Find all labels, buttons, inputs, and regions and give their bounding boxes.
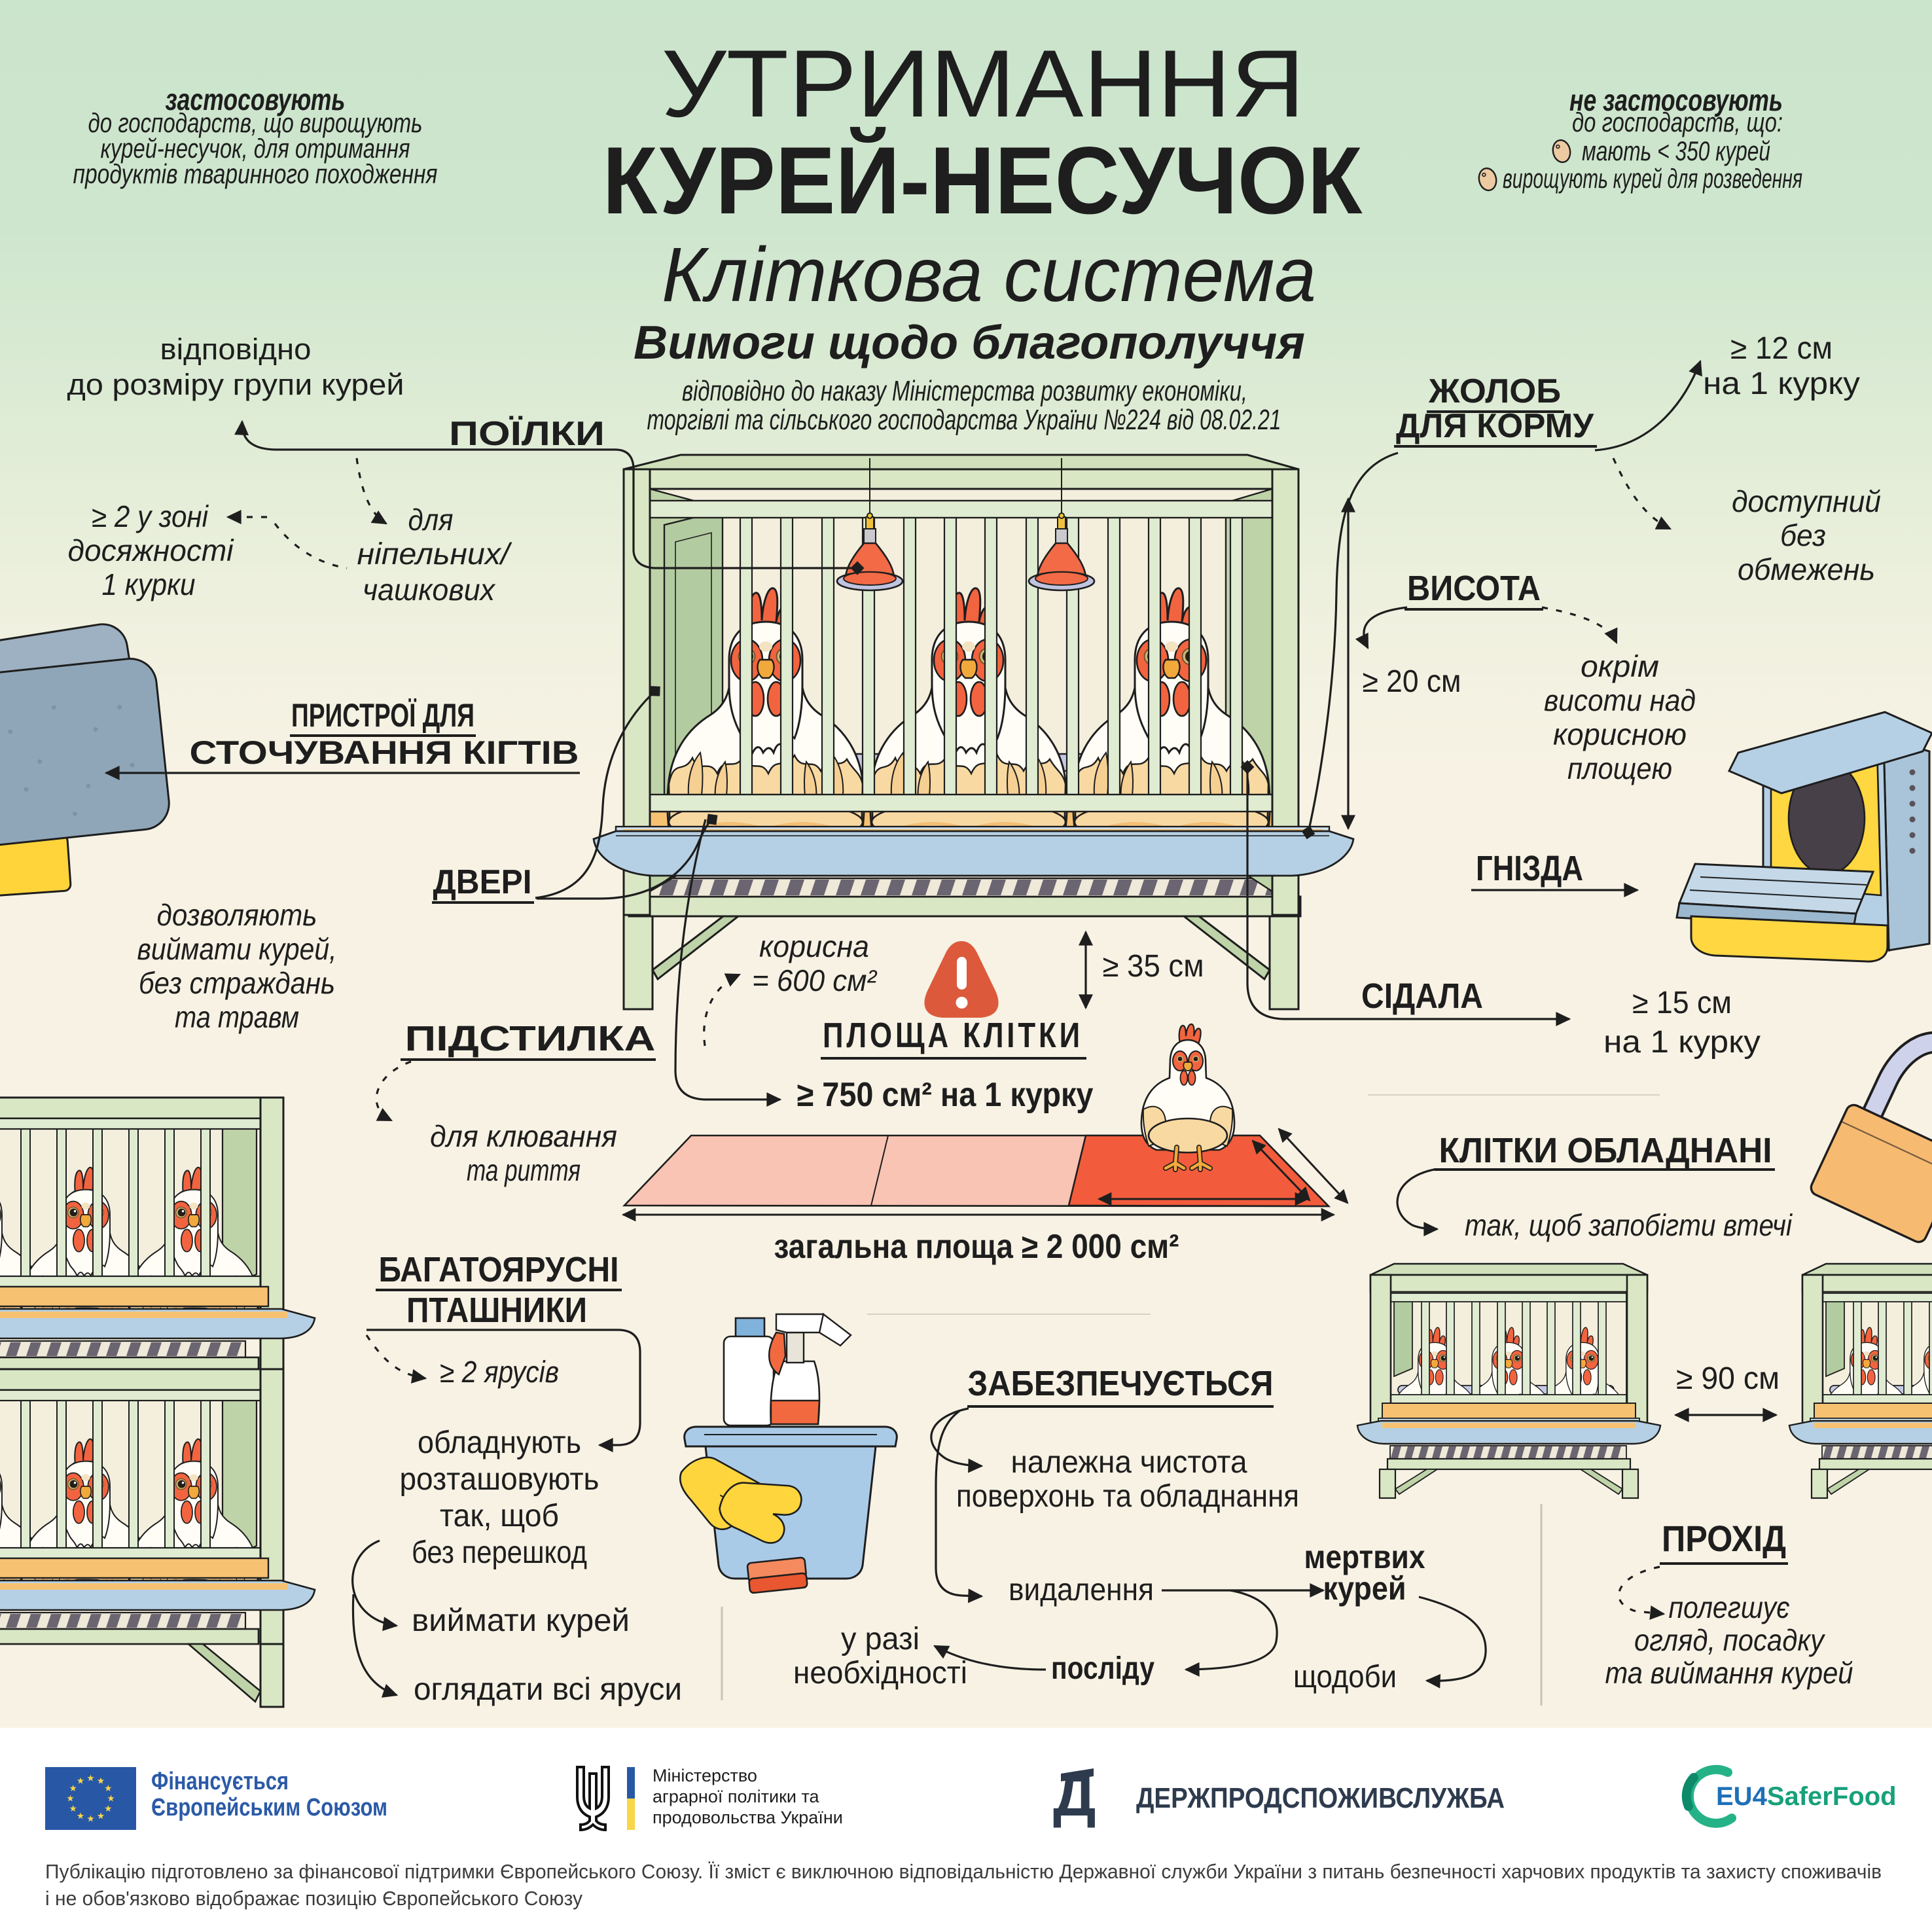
svg-text:чашкових: чашкових	[363, 573, 496, 607]
svg-text:виймати курей,: виймати курей,	[137, 932, 337, 966]
svg-text:УТРИМАННЯ: УТРИМАННЯ	[662, 30, 1305, 137]
svg-text:необхідності: необхідності	[793, 1656, 967, 1690]
svg-text:поверхонь та обладнання: поверхонь та обладнання	[956, 1479, 1299, 1514]
svg-text:так, щоб запобігти втечі: так, щоб запобігти втечі	[1465, 1208, 1793, 1242]
svg-text:ПІДСТИЛКА: ПІДСТИЛКА	[405, 1019, 656, 1058]
svg-text:висоти над: висоти над	[1544, 683, 1696, 717]
svg-text:= 600 см²: = 600 см²	[752, 963, 878, 997]
svg-text:посліду: посліду	[1051, 1651, 1154, 1686]
svg-text:відповідно: відповідно	[160, 332, 312, 366]
svg-text:≥ 750 см² на 1 курку: ≥ 750 см² на 1 курку	[797, 1076, 1094, 1114]
svg-text:ГНІЗДА: ГНІЗДА	[1476, 849, 1583, 888]
svg-text:на 1 курку: на 1 курку	[1703, 367, 1860, 401]
svg-text:для клювання: для клювання	[430, 1119, 617, 1153]
svg-text:КЛІТКИ ОБЛАДНАНІ: КЛІТКИ ОБЛАДНАНІ	[1439, 1131, 1772, 1170]
svg-text:належна чистота: належна чистота	[1011, 1445, 1247, 1480]
svg-text:окрім: окрім	[1581, 649, 1659, 683]
svg-text:до господарств, що:: до господарств, що:	[1572, 107, 1783, 137]
svg-text:доступний: доступний	[1732, 484, 1881, 518]
svg-text:до розміру групи курей: до розміру групи курей	[67, 368, 404, 401]
svg-text:мають < 350 курей: мають < 350 курей	[1582, 135, 1770, 166]
svg-text:ВИСОТА: ВИСОТА	[1407, 569, 1541, 608]
svg-text:щодоби: щодоби	[1293, 1660, 1397, 1694]
svg-text:торгівлі та сільського господа: торгівлі та сільського господарства Укра…	[647, 404, 1281, 436]
svg-text:продовольства України: продовольства України	[653, 1808, 843, 1827]
svg-text:≥ 35 см: ≥ 35 см	[1103, 949, 1204, 984]
svg-text:Вимоги щодо благополуччя: Вимоги щодо благополуччя	[634, 317, 1305, 369]
svg-text:Кліткова система: Кліткова система	[662, 232, 1316, 318]
svg-text:і не обов'язково відображає по: і не обов'язково відображає позицію Євро…	[45, 1887, 582, 1910]
svg-text:загальна площа ≥ 2 000 см²: загальна площа ≥ 2 000 см²	[774, 1228, 1179, 1266]
svg-text:виймати курей: виймати курей	[412, 1603, 630, 1638]
svg-text:вирощують курей для розведення: вирощують курей для розведення	[1503, 163, 1802, 194]
svg-text:оглядати всі яруси: оглядати всі яруси	[414, 1672, 682, 1707]
svg-text:СІДАЛА: СІДАЛА	[1361, 976, 1483, 1016]
svg-text:обмежень: обмежень	[1738, 552, 1875, 586]
svg-text:аграрної політики та: аграрної політики та	[653, 1787, 820, 1806]
svg-text:без: без	[1780, 518, 1826, 552]
svg-text:БАГАТОЯРУСНІ: БАГАТОЯРУСНІ	[379, 1250, 619, 1289]
svg-text:курей: курей	[1323, 1570, 1406, 1607]
svg-text:СТОЧУВАННЯ КІГТІВ: СТОЧУВАННЯ КІГТІВ	[190, 734, 579, 771]
svg-text:полегшує: полегшує	[1669, 1590, 1790, 1624]
svg-text:Міністерство: Міністерство	[653, 1766, 757, 1785]
svg-text:корисною: корисною	[1553, 717, 1687, 751]
svg-text:продуктів тваринного походженн: продуктів тваринного походження	[73, 158, 438, 189]
svg-text:≥ 2 ярусів: ≥ 2 ярусів	[440, 1355, 559, 1389]
svg-text:на 1 курку: на 1 курку	[1603, 1025, 1761, 1060]
svg-text:КУРЕЙ-НЕСУЧОК: КУРЕЙ-НЕСУЧОК	[603, 126, 1363, 234]
svg-text:огляд, посадку: огляд, посадку	[1634, 1623, 1826, 1657]
svg-text:ПРИСТРОЇ ДЛЯ: ПРИСТРОЇ ДЛЯ	[291, 697, 474, 734]
svg-text:ЗАБЕЗПЕЧУЄТЬСЯ: ЗАБЕЗПЕЧУЄТЬСЯ	[968, 1364, 1274, 1403]
svg-text:та травм: та травм	[175, 1000, 299, 1034]
svg-text:площею: площею	[1567, 751, 1672, 785]
svg-text:без страждань: без страждань	[139, 966, 335, 1000]
svg-text:≥ 12 см: ≥ 12 см	[1730, 331, 1833, 366]
svg-text:ДВЕРІ: ДВЕРІ	[433, 863, 532, 901]
svg-text:ДЕРЖПРОДСПОЖИВСЛУЖБА: ДЕРЖПРОДСПОЖИВСЛУЖБА	[1136, 1782, 1505, 1814]
svg-text:видалення: видалення	[1009, 1573, 1154, 1607]
svg-text:1 курки: 1 курки	[102, 567, 196, 601]
svg-text:EU4SaferFood: EU4SaferFood	[1716, 1782, 1897, 1811]
svg-text:без перешкод: без перешкод	[412, 1535, 587, 1570]
svg-text:у разі: у разі	[841, 1622, 920, 1656]
svg-text:ПРОХІД: ПРОХІД	[1662, 1518, 1786, 1559]
svg-text:корисна: корисна	[759, 929, 869, 963]
svg-text:Фінансується: Фінансується	[151, 1768, 289, 1795]
svg-text:обладнують: обладнують	[418, 1425, 581, 1460]
svg-text:ЖОЛОБ: ЖОЛОБ	[1428, 372, 1561, 410]
svg-text:досяжності: досяжності	[68, 533, 235, 567]
svg-text:так, щоб: так, щоб	[440, 1499, 559, 1533]
svg-text:ПОЇЛКИ: ПОЇЛКИ	[449, 415, 605, 453]
svg-text:≥ 90 см: ≥ 90 см	[1676, 1361, 1780, 1396]
svg-text:та виймання курей: та виймання курей	[1605, 1656, 1853, 1690]
svg-text:розташовують: розташовують	[400, 1462, 599, 1497]
svg-text:≥ 20 см: ≥ 20 см	[1363, 664, 1461, 699]
svg-text:Публікацію підготовлено за фін: Публікацію підготовлено за фінансової пі…	[45, 1860, 1882, 1883]
svg-text:ПЛОЩА КЛІТКИ: ПЛОЩА КЛІТКИ	[823, 1016, 1083, 1055]
svg-text:Європейським Союзом: Європейським Союзом	[151, 1794, 387, 1821]
svg-text:ПТАШНИКИ: ПТАШНИКИ	[406, 1291, 587, 1330]
svg-text:дозволяють: дозволяють	[157, 898, 317, 932]
svg-text:≥ 2 у зоні: ≥ 2 у зоні	[92, 499, 209, 533]
svg-text:ніпельних/: ніпельних/	[357, 537, 512, 571]
svg-text:та риття: та риття	[467, 1153, 581, 1187]
svg-text:відповідно до наказу Міністерс: відповідно до наказу Міністерства розвит…	[682, 375, 1247, 407]
svg-text:≥ 15 см: ≥ 15 см	[1632, 986, 1732, 1020]
svg-text:для: для	[408, 503, 454, 537]
